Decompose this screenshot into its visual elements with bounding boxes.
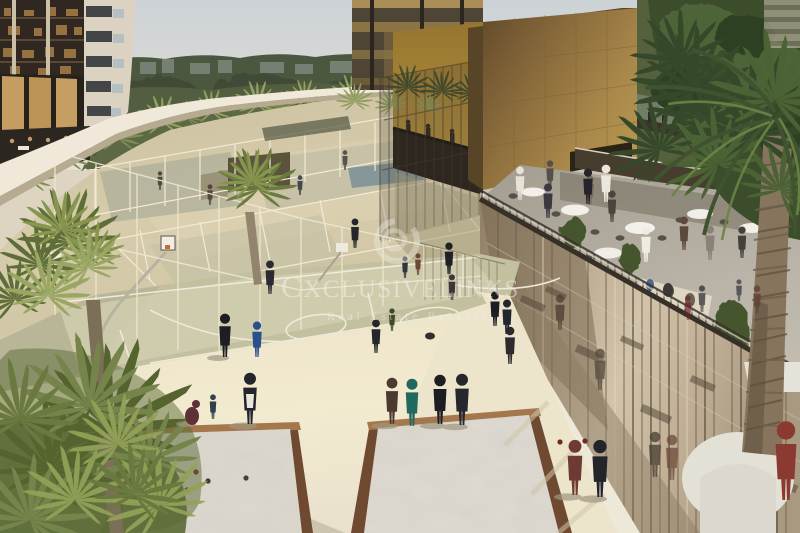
- svg-text:Real Estate Brokers: Real Estate Brokers: [327, 309, 491, 323]
